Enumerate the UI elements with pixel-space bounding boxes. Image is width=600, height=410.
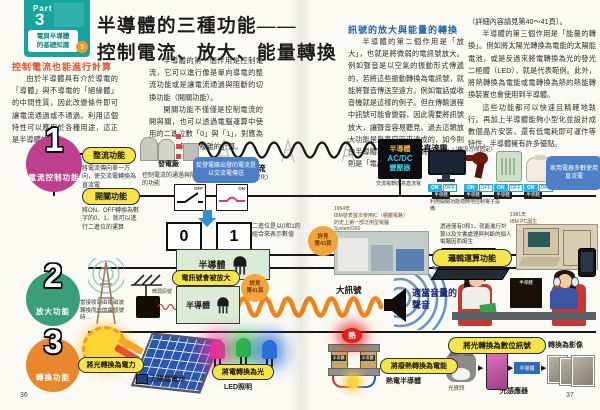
ibm-caption: 1964年 IBM發表首次使用IC（積體電路） 的史上第一部泛用型電腦 Syst… <box>334 206 436 233</box>
monitor-icon <box>428 150 466 175</box>
off-badge: OFF <box>509 184 523 192</box>
headphone-icon <box>571 277 579 287</box>
logic-pill: 邏輯運算功能 <box>432 249 512 267</box>
page-number-right: 37 <box>566 392 574 399</box>
plant-label: 發電廠 <box>158 159 179 169</box>
led-icon <box>262 340 277 359</box>
amplify-pill: 電訊號會被放大 <box>172 270 240 286</box>
section1-label: 電流控制功能 <box>26 172 82 183</box>
volume-label: 適當音量的 聲音 <box>412 288 472 311</box>
on-badge: ON <box>428 184 442 192</box>
converter-note1: 交流電轉換為直流電 <box>376 181 428 188</box>
paragraph: 由於半導體具有介於導電的「導體」與不導電的「絕緣體」的中間性質，因此改變條件即可… <box>12 73 118 146</box>
power-plant-icon <box>138 131 198 159</box>
receiver-icon <box>136 296 160 318</box>
left-heading: 控制電流也能進行計算 <box>12 60 112 73</box>
panel-mini-icon <box>136 374 148 384</box>
right-column-2: （詳細內容請見第40～41頁）。 半導體的第三個作用是「能量的轉換」。例如將太陽… <box>468 16 596 151</box>
led-icon <box>236 338 251 357</box>
paragraph: 半導體的第三個作用是「能量的轉換」。例如將太陽光轉換為電能的太陽能電池，或是反過… <box>468 28 596 101</box>
section3-circle: 3 轉換功能 <box>26 338 80 392</box>
chip-label: 半導體 <box>464 191 482 199</box>
device-onoff: ONOFF <box>428 184 457 192</box>
laptop-base <box>431 269 510 280</box>
paragraph: （詳細內容請見第40～41頁）。 <box>468 16 596 28</box>
on-badge: ON <box>494 184 508 192</box>
big-signal-label: 大訊號 <box>336 284 362 296</box>
led-pill: 將電轉換為光 <box>212 364 274 380</box>
light-info-label: 光資訊 <box>448 384 465 392</box>
broadcast-tower-icon <box>88 258 124 326</box>
table <box>452 312 596 320</box>
headphone-icon <box>553 277 561 287</box>
see-page43-badge: 詳見 第43頁 <box>308 226 338 256</box>
photo-detail <box>338 238 368 271</box>
cooling-tower <box>140 137 158 161</box>
thermo-label: 熱電半導體 <box>386 376 421 386</box>
dryer-handle <box>475 162 485 178</box>
speaker-icon <box>384 286 408 324</box>
semiconductor-box: 半導體 <box>176 286 240 324</box>
chip-label: 半導體 <box>519 280 533 308</box>
switch-pill: 開關功能 <box>82 188 140 205</box>
home-note-box: 家用電器多數使用直流電 <box>546 156 600 190</box>
corner-number: 3 <box>76 41 88 53</box>
solar-panel-icon <box>131 332 221 393</box>
binary-note: 二進位是以0和1的組合來表示數值 <box>252 223 306 240</box>
heat-label: 熱 <box>342 328 362 343</box>
section1-circle: 1 電流控制功能 <box>26 136 82 192</box>
chip-label: 半導體 <box>432 191 450 199</box>
series-title: 電與半導體 的基礎知識 <box>28 30 78 52</box>
section1-number: 1 <box>45 123 63 156</box>
thermo-device-icon: 熱 半導體 半導體 <box>328 330 378 390</box>
device-onoff: ONOFF <box>464 184 493 192</box>
solar-label: 太陽能電池 <box>150 374 185 384</box>
transistor-icon <box>216 295 230 315</box>
chip-label: 半導體 <box>360 355 375 361</box>
section2-number: 2 <box>44 259 62 292</box>
chimney <box>176 131 181 159</box>
off-badge: OFF <box>479 184 493 192</box>
title-line1: 半導體的三種功能—— <box>97 14 337 41</box>
cooling-tower <box>158 139 175 161</box>
on-badge: ON <box>464 184 478 192</box>
sensor-chip: 半導體 <box>514 362 540 374</box>
rectifier-note: 將電流傳向單一方向，使交流電轉換為直流電 <box>82 165 140 190</box>
switch-off-label: OFF <box>194 186 203 191</box>
bit-1-box: 1 <box>216 222 252 251</box>
cover-pattern <box>54 3 84 27</box>
switch-off-icon: OFF <box>174 184 206 211</box>
monitor-base <box>437 179 455 182</box>
arrow-right-icon: ▶ <box>478 364 483 372</box>
thermo-pill: 將廢熱轉換為電能 <box>380 358 458 374</box>
section2-label: 放大功能 <box>26 306 80 317</box>
dryer-nozzle <box>466 155 474 161</box>
rectifier-pill: 整流功能 <box>82 147 136 164</box>
photo-detail <box>528 232 550 247</box>
switch-note2: 將ON、OFF轉換為數字的0、1，就可以進行二進位的運算 <box>82 207 140 232</box>
part-number: 3 <box>35 10 44 30</box>
photo-detail <box>371 245 393 271</box>
bit-0-box: 0 <box>166 222 202 251</box>
solar-label-group: 太陽能電池 <box>136 374 185 384</box>
switch-on-icon: ON <box>216 184 248 211</box>
arrow-right-icon: ▶ <box>508 364 513 372</box>
chip-label: 半導體 <box>524 191 542 199</box>
converter-note2: 利用開關功能適時地控制電子設備 <box>430 199 500 213</box>
photo-detail <box>519 257 561 266</box>
heater-grill <box>501 158 516 175</box>
photo-pill: 將光轉換為數位訊號 <box>448 337 546 354</box>
weak-signal-label: 微弱訊號 <box>152 288 172 295</box>
section3-number: 3 <box>44 325 62 358</box>
left-column-1: 由於半導體具有介於導電的「導體」與不導電的「絕緣體」的中間性質，因此改變條件即可… <box>12 73 118 146</box>
book-spread: Part 3 電與半導體 的基礎知識 3 半導體的三種功能—— 控制電流、放大、… <box>0 0 600 410</box>
down-arrow-icon <box>198 218 216 227</box>
bulb-icon <box>347 376 359 388</box>
on-badge: ON <box>524 184 538 192</box>
pc-note: 透過僅有0和1，就能進行計算以及文書處理與判斷的個人電腦因而誕生 <box>440 224 512 247</box>
acdc-converter: 半導體 AC/DC 變壓器 <box>378 139 422 179</box>
device-onoff: ONOFF <box>494 184 523 192</box>
section3-label: 轉換功能 <box>26 372 80 383</box>
page-number-left: 36 <box>20 392 28 399</box>
chip-label: 半導體 <box>331 355 346 361</box>
semiconductor-label: 半導體 <box>186 300 210 311</box>
weak-wave-icon <box>158 302 178 312</box>
converter-line2: AC/DC <box>387 154 412 164</box>
shirt <box>550 288 578 309</box>
solar-pill: 將光轉換為電力 <box>78 357 144 373</box>
switch-on-label: ON <box>238 186 245 191</box>
see-page41-badge: 詳見 第41頁 <box>241 274 269 302</box>
arrow-right-icon: ▶ <box>541 364 546 372</box>
converter-line1: 半導體 <box>390 145 411 154</box>
blue-wire <box>357 375 376 388</box>
heater-icon <box>496 151 522 182</box>
image-label: 轉換為影像 <box>548 340 583 350</box>
cooker-lid <box>534 155 546 160</box>
converter-line3: 變壓器 <box>390 164 411 173</box>
section2-circle: 2 放大功能 <box>26 272 80 326</box>
hairdryer-icon <box>472 152 496 182</box>
paragraph: 半導體的第一個作用是控制電流，它可以進行像是單向導電的整流功能或是讓電流通過與阻… <box>149 55 263 104</box>
semiconductor-device: 半導體 <box>510 278 542 308</box>
connector <box>399 179 401 195</box>
led-label: LED照明 <box>224 382 252 392</box>
ac-note-box: 從發電廠出發的電流是以交流電傳送 <box>193 157 259 183</box>
part-badge: Part 3 電與半導體 的基礎知識 3 <box>24 0 90 57</box>
ibm-system360-photo <box>334 231 429 275</box>
off-badge: OFF <box>443 184 457 192</box>
right-heading: 訊號的放大與能量的轉換 <box>348 23 458 36</box>
camera-phone-icon <box>486 350 508 390</box>
led-icon <box>210 340 225 359</box>
chip-label: 半導體 <box>494 191 512 199</box>
photo-detail <box>396 249 424 271</box>
photo-frame <box>572 356 594 386</box>
